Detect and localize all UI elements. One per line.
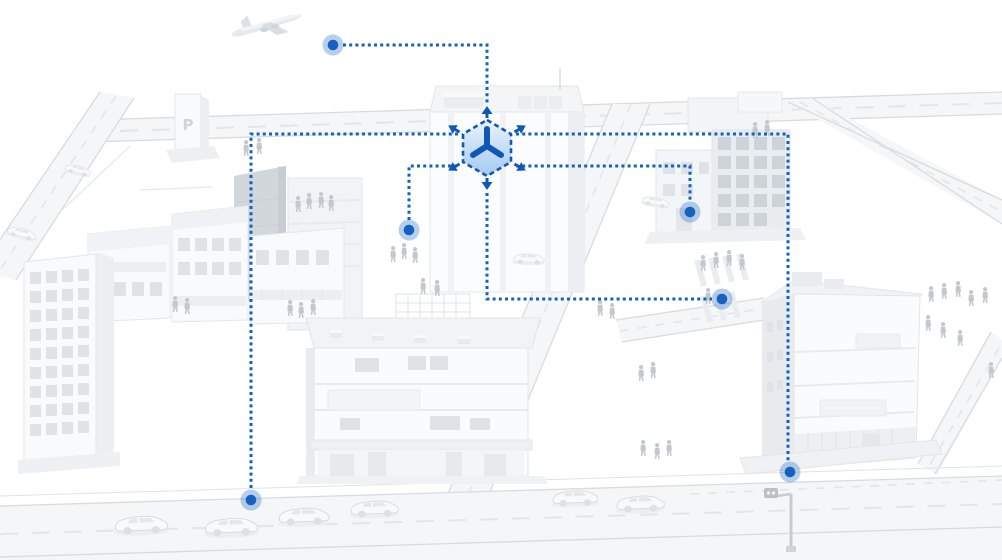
pedestrian (609, 303, 615, 319)
pedestrian (968, 290, 974, 306)
pedestrian (982, 287, 988, 303)
parking-sign-letter: P (183, 116, 194, 134)
pedestrian (650, 362, 656, 378)
pedestrian (957, 330, 963, 346)
pedestrian (940, 322, 946, 338)
pedestrian (640, 440, 646, 456)
pedestrian (390, 246, 396, 262)
pedestrian (925, 315, 931, 331)
pedestrian (420, 278, 426, 294)
pedestrian (256, 138, 262, 154)
side-street-node (680, 202, 701, 223)
pedestrian (713, 252, 719, 268)
air-traffic-node (323, 35, 344, 56)
pedestrian (638, 365, 644, 381)
pedestrian (243, 140, 249, 156)
pedestrian (700, 255, 706, 271)
crosswalk-node (712, 289, 733, 310)
pedestrian (928, 286, 934, 302)
pedestrian (412, 247, 418, 263)
plaza-node (399, 220, 420, 241)
skyscraper (430, 68, 584, 292)
pedestrian (705, 288, 711, 304)
center-building (296, 318, 548, 484)
left-tower-building (18, 252, 120, 474)
bottom-right-building (740, 272, 942, 474)
pedestrian (401, 243, 407, 259)
pedestrian (654, 443, 660, 459)
pedestrian (597, 300, 603, 316)
city-scene-svg: P (0, 0, 1002, 560)
pedestrian (666, 440, 672, 456)
traffic-signal-node (780, 462, 801, 483)
pedestrian (955, 281, 961, 297)
airplane-icon (230, 11, 303, 39)
southwest-road-node (241, 490, 262, 511)
illustration-canvas: P (0, 0, 1002, 560)
pedestrian (941, 283, 947, 299)
